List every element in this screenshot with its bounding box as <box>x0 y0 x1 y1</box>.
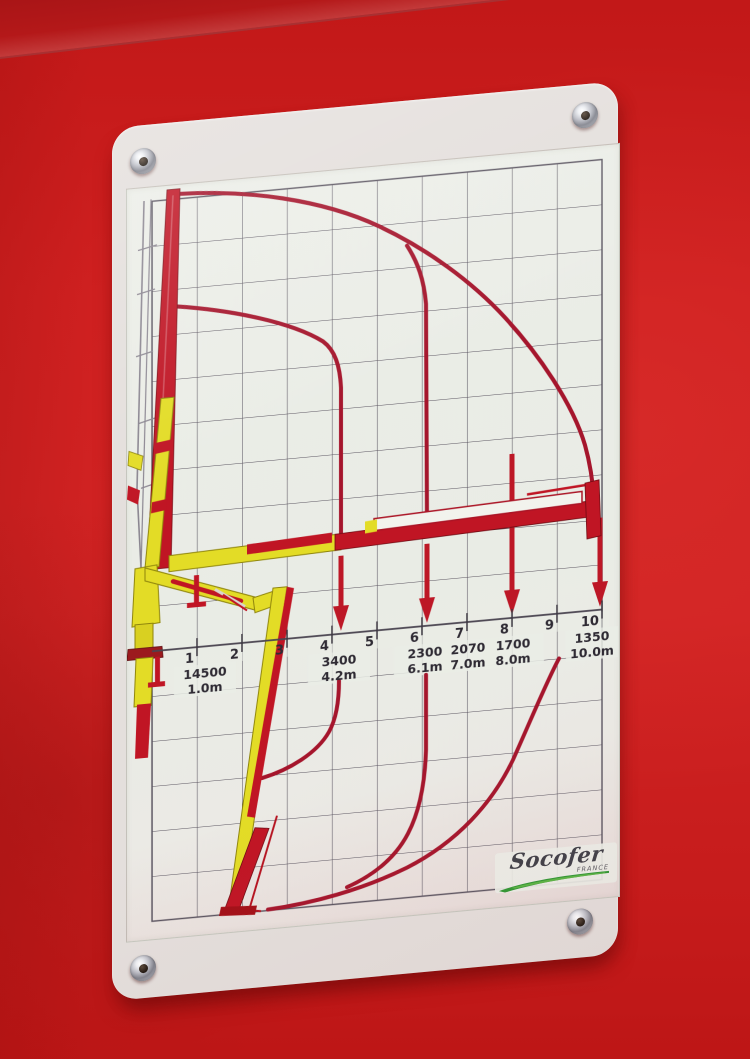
photo-scene: 1 2 3 4 5 6 7 8 9 10 14500 1.0m 3400 4.2… <box>0 0 750 1059</box>
plate-sheen <box>112 81 618 1001</box>
load-chart-plate: 1 2 3 4 5 6 7 8 9 10 14500 1.0m 3400 4.2… <box>112 81 618 1001</box>
red-surface-top-shadow <box>0 0 750 65</box>
